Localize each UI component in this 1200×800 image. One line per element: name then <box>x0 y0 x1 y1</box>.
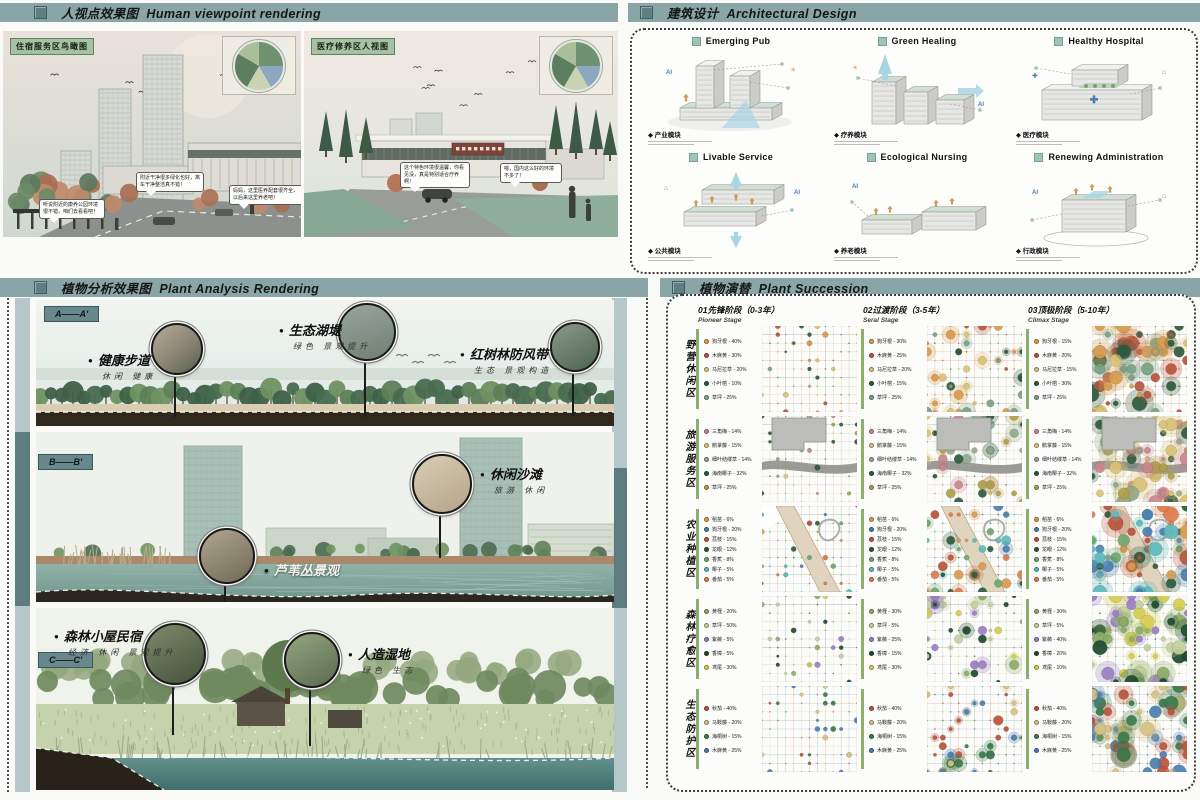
zone-label: 野营休闲区 <box>670 339 696 399</box>
legend-item: 三角梅 - 14% <box>869 428 921 435</box>
legend-item: 香蕉 - 8% <box>869 556 921 563</box>
legend-item: 马鞍藤 - 20% <box>1034 719 1086 726</box>
legend-item: 番茄 - 5% <box>869 576 921 583</box>
legend-item: 黄槿 - 30% <box>1034 608 1086 615</box>
header-title: 植物分析效果图Plant Analysis Rendering <box>61 278 319 297</box>
callout-subtext: 生态 景观构造 <box>474 365 552 376</box>
legend-item: 番茄 - 5% <box>1034 576 1086 583</box>
legend-text: 香蕉 - 8% <box>877 556 899 563</box>
feature-callout: ●休闲沙滩旅游 休闲 <box>480 464 548 496</box>
legend-text: 马鞍藤 - 20% <box>712 719 741 726</box>
legend-text: 马尼拉草 - 15% <box>1042 366 1076 373</box>
site-plan-inset <box>222 36 296 95</box>
legend-dot <box>1034 547 1039 552</box>
speech-bubble: 妈妈，这里医养配套很齐全，以后来这里养老吧！ <box>229 185 301 205</box>
legend-item: 海桐树 - 15% <box>1034 733 1086 740</box>
legend-dot <box>704 651 709 656</box>
legend-text: 鹅掌藤 - 15% <box>712 442 741 449</box>
section-tag: B——B' <box>38 454 93 470</box>
module-title: Renewing Administration <box>1048 152 1163 162</box>
legend-text: 鸢尾 - 30% <box>877 664 901 671</box>
legend-text: 香蕉 - 8% <box>1042 556 1064 563</box>
callout-subtext: 绿色 生态 <box>362 665 416 676</box>
legend-text: 小叶榕 - 10% <box>712 380 741 387</box>
legend-text: 荔枝 - 15% <box>712 536 736 543</box>
legend-dot <box>1034 651 1039 656</box>
legend-text: 香蕉 - 8% <box>712 556 734 563</box>
stage-header: 02过渡阶段（3-5年）Seral Stage <box>863 304 1028 324</box>
legend-item: 荔枝 - 15% <box>1034 536 1086 543</box>
legend-dot <box>704 367 709 372</box>
architecture-module: Emerging PubAI☀◆ 产业模块 <box>640 34 822 148</box>
stage-title: 03顶极阶段（5-10年） <box>1028 304 1193 316</box>
ai-icon: AI <box>852 184 858 190</box>
legend-item: 荔枝 - 15% <box>704 536 756 543</box>
succession-dot-grid <box>1092 326 1187 412</box>
legend-dot <box>704 577 709 582</box>
legend-text: 狗牙根 - 30% <box>877 338 906 345</box>
legend-dot <box>869 567 874 572</box>
callout-subtext: 经济 休闲 景观提升 <box>68 647 176 658</box>
succession-dot-grid <box>762 686 857 772</box>
legend-text: 小叶榕 - 30% <box>1042 380 1071 387</box>
succession-cell: 秋茄 - 40%马鞍藤 - 20%海桐树 - 15%木麻黄 - 25% <box>696 685 861 773</box>
legend-dot <box>704 429 709 434</box>
legend-item: 椰子 - 5% <box>869 566 921 573</box>
legend-dot <box>704 706 709 711</box>
legend-dot <box>704 734 709 739</box>
legend-text: 草坪 - 25% <box>877 394 901 401</box>
legend-item: 海南椰子 - 32% <box>704 470 756 477</box>
legend-text: 荔枝 - 15% <box>877 536 901 543</box>
legend-dot <box>1034 567 1039 572</box>
legend-item: 香蕉 - 8% <box>1034 556 1086 563</box>
succession-cell: 稻苗 - 6%狗牙根 - 20%荔枝 - 15%龙眼 - 12%香蕉 - 8%椰… <box>696 505 861 593</box>
zone-label: 森林疗愈区 <box>670 609 696 669</box>
legend-dot <box>1034 557 1039 562</box>
legend-item: 鸢尾 - 30% <box>704 664 756 671</box>
speech-bubble: 嗯，国内这么好的环境不多了！ <box>500 163 562 183</box>
legend-item: 稻苗 - 6% <box>1034 516 1086 523</box>
legend-item: 鸢尾 - 30% <box>869 664 921 671</box>
legend-dot <box>704 537 709 542</box>
feature-callout: ●红树林防风带生态 景观构造 <box>460 344 552 376</box>
rendering-title-tag: 医疗修养区人视图 <box>311 38 395 55</box>
legend-item: 小叶榕 - 15% <box>869 380 921 387</box>
legend-item: 龙眼 - 12% <box>704 546 756 553</box>
legend-item: 狗牙根 - 40% <box>704 338 756 345</box>
module-note-line <box>648 257 712 259</box>
header-title: 人视点效果图Human viewpoint rendering <box>61 3 321 22</box>
legend-dot <box>869 353 874 358</box>
legend-item: 海桐树 - 15% <box>869 733 921 740</box>
stage-subtitle: Pioneer Stage <box>698 317 863 324</box>
legend-item: 鹅掌藤 - 15% <box>1034 442 1086 449</box>
zone-label: 农业种植区 <box>670 519 696 579</box>
legend-dot <box>869 471 874 476</box>
legend-dot <box>704 720 709 725</box>
site-plan-icon <box>550 40 602 92</box>
legend-item: 稻苗 - 6% <box>869 516 921 523</box>
side-bar-left <box>15 298 30 792</box>
legend-item: 狗牙根 - 20% <box>1034 526 1086 533</box>
legend-item: 龙眼 - 12% <box>1034 546 1086 553</box>
succession-dot-grid <box>762 326 857 412</box>
module-note: ◆ 公共模块 <box>648 245 712 261</box>
legend-item: 紫薇 - 25% <box>869 636 921 643</box>
legend-item: 草坪 - 25% <box>1034 394 1086 401</box>
legend-item: 细叶结缕草 - 14% <box>1034 456 1086 463</box>
legend-text: 细叶结缕草 - 14% <box>1042 456 1081 463</box>
legend-item: 香蕉 - 8% <box>704 556 756 563</box>
succession-legend: 稻苗 - 6%狗牙根 - 20%荔枝 - 15%龙眼 - 12%香蕉 - 8%椰… <box>696 509 756 589</box>
legend-text: 木麻黄 - 25% <box>877 747 906 754</box>
legend-dot <box>1034 748 1039 753</box>
succession-cell: 黄槿 - 20%草坪 - 50%紫薇 - 5%香樟 - 5%鸢尾 - 30% <box>696 595 861 683</box>
legend-dot <box>1034 577 1039 582</box>
legend-text: 草坪 - 25% <box>877 484 901 491</box>
succession-dot-grid <box>927 686 1022 772</box>
section-marker-icon <box>34 6 47 19</box>
legend-dot <box>869 651 874 656</box>
legend-text: 秋茄 - 40% <box>712 705 736 712</box>
stage-subtitle: Climax Stage <box>1028 317 1193 324</box>
legend-text: 三角梅 - 14% <box>1042 428 1071 435</box>
callout-stem <box>439 510 441 558</box>
legend-text: 木麻黄 - 25% <box>1042 747 1071 754</box>
legend-item: 海南椰子 - 32% <box>1034 470 1086 477</box>
legend-text: 椰子 - 5% <box>1042 566 1064 573</box>
callout-detail-circle <box>151 323 203 375</box>
bullet-dot-icon: ● <box>54 632 59 641</box>
callout-detail-circle <box>412 454 472 514</box>
callout-name: ●健康步道 <box>88 350 156 369</box>
stage-header-row: 01先锋阶段（0-3年）Pioneer Stage02过渡阶段（3-5年）Ser… <box>698 304 1194 324</box>
header-title-en: Human viewpoint rendering <box>146 7 321 21</box>
legend-text: 草坪 - 50% <box>712 622 736 629</box>
legend-text: 海南椰子 - 32% <box>1042 470 1076 477</box>
ai-icon: AI <box>978 102 984 108</box>
speech-bubble: 附近干净很多绿化也好，离车干净整洁真不错！ <box>136 172 204 192</box>
house-icon: ⌂ <box>1162 193 1166 200</box>
legend-dot <box>704 547 709 552</box>
succession-dot-grid <box>927 416 1022 502</box>
feature-callout: ●人造湿地绿色 生态 <box>348 644 416 676</box>
speech-bubble: 这个特色环境很温馨，你看见没，真是特别适合疗养啊！ <box>400 162 470 188</box>
legend-item: 小叶榕 - 30% <box>1034 380 1086 387</box>
legend-item: 狗牙根 - 30% <box>869 338 921 345</box>
succession-dot-grid <box>762 506 857 592</box>
succession-legend: 三角梅 - 14%鹅掌藤 - 15%细叶结缕草 - 14%海南椰子 - 32%草… <box>1026 419 1086 499</box>
architecture-module: Healthy Hospital✚⌂◆ 医疗模块 <box>1008 34 1190 148</box>
stage-header: 03顶极阶段（5-10年）Climax Stage <box>1028 304 1193 324</box>
legend-dot <box>869 517 874 522</box>
legend-item: 木麻黄 - 25% <box>869 352 921 359</box>
legend-text: 三角梅 - 14% <box>877 428 906 435</box>
legend-text: 草坪 - 25% <box>1042 484 1066 491</box>
module-axonometric: AI <box>838 164 996 252</box>
legend-dot <box>1034 443 1039 448</box>
legend-text: 海桐树 - 15% <box>1042 733 1071 740</box>
legend-text: 黄槿 - 20% <box>712 608 736 615</box>
succession-cell: 狗牙根 - 15%木麻黄 - 20%马尼拉草 - 15%小叶榕 - 30%草坪 … <box>1026 325 1191 413</box>
legend-text: 香樟 - 15% <box>877 650 901 657</box>
succession-dot-grid <box>1092 416 1187 502</box>
legend-dot <box>704 567 709 572</box>
zone-row: 旅游服务区三角梅 - 14%鹅掌藤 - 15%细叶结缕草 - 14%海南椰子 -… <box>670 414 1194 504</box>
legend-dot <box>1034 457 1039 462</box>
succession-dot-grid <box>927 326 1022 412</box>
legend-item: 草坪 - 25% <box>704 394 756 401</box>
ai-icon: AI <box>666 70 672 76</box>
succession-legend: 秋茄 - 40%马鞍藤 - 20%海桐树 - 15%木麻黄 - 25% <box>1026 689 1086 769</box>
succession-cell: 三角梅 - 14%鹅掌藤 - 15%细叶结缕草 - 14%海南椰子 - 32%草… <box>1026 415 1191 503</box>
legend-text: 紫薇 - 40% <box>1042 636 1066 643</box>
legend-text: 狗牙根 - 20% <box>712 526 741 533</box>
bullet-dot-icon: ● <box>348 650 353 659</box>
legend-dot <box>1034 720 1039 725</box>
legend-dot <box>704 395 709 400</box>
legend-item: 稻苗 - 6% <box>704 516 756 523</box>
callout-detail-circle <box>550 322 600 372</box>
module-axonometric: ☀AI <box>838 48 996 136</box>
legend-dot <box>1034 395 1039 400</box>
legend-dot <box>704 665 709 670</box>
legend-dot <box>704 339 709 344</box>
architecture-module: Green Healing☀AI◆ 疗养模块 <box>826 34 1008 148</box>
legend-dot <box>869 547 874 552</box>
legend-dot <box>704 353 709 358</box>
section-b: B——B'●休闲沙滩旅游 休闲●芦苇丛景观 <box>36 432 614 602</box>
legend-item: 狗牙根 - 20% <box>869 526 921 533</box>
callout-name: ●休闲沙滩 <box>480 464 548 483</box>
succession-legend: 黄槿 - 30%草坪 - 5%紫薇 - 40%香樟 - 20%鸢尾 - 10% <box>1026 599 1086 679</box>
legend-dot <box>704 457 709 462</box>
legend-item: 细叶结缕草 - 14% <box>869 456 921 463</box>
callout-detail-circle <box>199 528 255 584</box>
legend-dot <box>869 706 874 711</box>
succession-dot-grid <box>1092 506 1187 592</box>
legend-dot <box>869 748 874 753</box>
house-icon: ⌂ <box>664 185 668 192</box>
legend-dot <box>869 577 874 582</box>
legend-dot <box>704 471 709 476</box>
legend-dot <box>704 381 709 386</box>
callout-stem <box>572 368 574 416</box>
legend-text: 番茄 - 5% <box>712 576 734 583</box>
module-title-row: Healthy Hospital <box>1008 34 1190 48</box>
legend-text: 马鞍藤 - 20% <box>877 719 906 726</box>
legend-text: 稻苗 - 6% <box>877 516 899 523</box>
succession-cell: 三角梅 - 14%鹅掌藤 - 15%细叶结缕草 - 14%海南椰子 - 32%草… <box>861 415 1026 503</box>
module-note-line <box>648 260 694 262</box>
legend-dot <box>1034 734 1039 739</box>
legend-text: 狗牙根 - 40% <box>712 338 741 345</box>
legend-dot <box>704 623 709 628</box>
succession-dot-grid <box>1092 686 1187 772</box>
header-title-zh: 人视点效果图 <box>61 7 138 21</box>
architectural-design-panel: Emerging PubAI☀◆ 产业模块Green Healing☀AI◆ 疗… <box>630 28 1198 274</box>
header-plant-analysis: 植物分析效果图Plant Analysis Rendering <box>0 278 648 297</box>
legend-text: 鹅掌藤 - 15% <box>1042 442 1071 449</box>
legend-item: 香樟 - 15% <box>869 650 921 657</box>
stage-header: 01先锋阶段（0-3年）Pioneer Stage <box>698 304 863 324</box>
legend-dot <box>869 734 874 739</box>
bullet-dot-icon: ● <box>88 356 93 365</box>
feature-callout: ●健康步道休闲 健康 <box>88 350 156 382</box>
legend-text: 海南椰子 - 32% <box>877 470 911 477</box>
header-architectural-design: 建筑设计Architectural Design <box>628 3 1200 22</box>
module-title: Ecological Nursing <box>881 152 968 162</box>
legend-text: 细叶结缕草 - 14% <box>712 456 751 463</box>
legend-dot <box>1034 537 1039 542</box>
module-label: ◆ 疗养模块 <box>834 129 898 139</box>
module-note: ◆ 养老模块 <box>834 245 898 261</box>
bullet-dot-icon: ● <box>264 566 269 575</box>
legend-dot <box>704 527 709 532</box>
succession-cell: 黄槿 - 30%草坪 - 5%紫薇 - 25%香樟 - 15%鸢尾 - 30% <box>861 595 1026 683</box>
legend-text: 狗牙根 - 20% <box>877 526 906 533</box>
architecture-module: Ecological NursingAI◆ 养老模块 <box>826 150 1008 264</box>
callout-name: ●红树林防风带 <box>460 344 552 363</box>
legend-item: 番茄 - 5% <box>704 576 756 583</box>
succession-cell: 狗牙根 - 30%木麻黄 - 25%马尼拉草 - 20%小叶榕 - 15%草坪 … <box>861 325 1026 413</box>
legend-text: 荔枝 - 15% <box>1042 536 1066 543</box>
feature-callout: ●森林小屋民宿经济 休闲 景观提升 <box>54 626 176 658</box>
module-note: ◆ 疗养模块 <box>834 129 898 145</box>
legend-dot <box>869 485 874 490</box>
legend-item: 狗牙根 - 15% <box>1034 338 1086 345</box>
callout-subtext: 绿色 景观提升 <box>293 341 371 352</box>
legend-dot <box>869 720 874 725</box>
legend-item: 秋茄 - 40% <box>704 705 756 712</box>
legend-text: 海桐树 - 15% <box>877 733 906 740</box>
module-title-row: Livable Service <box>640 150 822 164</box>
legend-dot <box>704 443 709 448</box>
legend-dot <box>704 637 709 642</box>
legend-item: 海桐树 - 15% <box>704 733 756 740</box>
callout-stem <box>364 357 366 417</box>
legend-item: 草坪 - 5% <box>869 622 921 629</box>
legend-item: 香樟 - 5% <box>704 650 756 657</box>
succession-cell: 黄槿 - 30%草坪 - 5%紫薇 - 40%香樟 - 20%鸢尾 - 10% <box>1026 595 1191 683</box>
legend-item: 马鞍藤 - 20% <box>869 719 921 726</box>
legend-text: 木麻黄 - 20% <box>1042 352 1071 359</box>
module-note-line <box>834 144 880 146</box>
callout-detail-circle <box>284 632 340 688</box>
legend-item: 香樟 - 20% <box>1034 650 1086 657</box>
legend-text: 三角梅 - 14% <box>712 428 741 435</box>
side-bar-right-dark <box>612 468 627 608</box>
succession-cell: 秋茄 - 40%马鞍藤 - 20%海桐树 - 15%木麻黄 - 25% <box>861 685 1026 773</box>
legend-dot <box>704 609 709 614</box>
legend-dot <box>869 443 874 448</box>
stage-title: 01先锋阶段（0-3年） <box>698 304 863 316</box>
header-human-viewpoint: 人视点效果图Human viewpoint rendering <box>0 3 618 22</box>
legend-text: 龙眼 - 12% <box>877 546 901 553</box>
succession-legend: 三角梅 - 14%鹅掌藤 - 15%细叶结缕草 - 14%海南椰子 - 32%草… <box>861 419 921 499</box>
legend-dot <box>1034 527 1039 532</box>
bullet-dot-icon: ● <box>480 470 485 479</box>
legend-item: 草坪 - 5% <box>1034 622 1086 629</box>
module-label: ◆ 养老模块 <box>834 245 898 255</box>
legend-item: 狗牙根 - 20% <box>704 526 756 533</box>
module-axonometric: ⌂AI <box>1020 164 1178 252</box>
callout-name: ●森林小屋民宿 <box>54 626 176 645</box>
callout-name: ●生态湖堤 <box>279 320 371 339</box>
legend-item: 秋茄 - 40% <box>869 705 921 712</box>
legend-item: 草坪 - 25% <box>1034 484 1086 491</box>
module-note-line <box>1016 257 1080 259</box>
legend-text: 椰子 - 5% <box>712 566 734 573</box>
legend-item: 木麻黄 - 20% <box>1034 352 1086 359</box>
module-title-row: Emerging Pub <box>640 34 822 48</box>
module-marker-icon <box>692 37 701 46</box>
legend-text: 海桐树 - 15% <box>712 733 741 740</box>
succession-legend: 稻苗 - 6%狗牙根 - 20%荔枝 - 15%龙眼 - 12%香蕉 - 8%椰… <box>861 509 921 589</box>
module-label: ◆ 公共模块 <box>648 245 712 255</box>
legend-text: 草坪 - 25% <box>712 484 736 491</box>
legend-text: 细叶结缕草 - 14% <box>877 456 916 463</box>
zone-label: 生态防护区 <box>670 699 696 759</box>
header-title-zh: 植物分析效果图 <box>61 282 151 296</box>
succession-dot-grid <box>927 596 1022 682</box>
legend-item: 椰子 - 5% <box>1034 566 1086 573</box>
legend-item: 三角梅 - 14% <box>1034 428 1086 435</box>
legend-item: 木麻黄 - 30% <box>704 352 756 359</box>
module-title: Emerging Pub <box>706 36 771 46</box>
zone-row: 森林疗愈区黄槿 - 20%草坪 - 50%紫薇 - 5%香樟 - 5%鸢尾 - … <box>670 594 1194 684</box>
legend-dot <box>1034 367 1039 372</box>
succession-legend: 狗牙根 - 15%木麻黄 - 20%马尼拉草 - 15%小叶榕 - 30%草坪 … <box>1026 329 1086 409</box>
legend-text: 鹅掌藤 - 15% <box>877 442 906 449</box>
legend-text: 海南椰子 - 32% <box>712 470 746 477</box>
legend-dot <box>1034 706 1039 711</box>
legend-item: 海南椰子 - 32% <box>869 470 921 477</box>
module-label: ◆ 医疗模块 <box>1016 129 1080 139</box>
succession-legend: 狗牙根 - 30%木麻黄 - 25%马尼拉草 - 20%小叶榕 - 15%草坪 … <box>861 329 921 409</box>
callout-stem <box>309 684 311 746</box>
module-note-line <box>648 144 694 146</box>
legend-dot <box>1034 429 1039 434</box>
succession-dot-grid <box>762 596 857 682</box>
legend-text: 狗牙根 - 20% <box>1042 526 1071 533</box>
legend-item: 草坪 - 25% <box>869 484 921 491</box>
medical-cross-icon: ✚ <box>1032 72 1038 80</box>
rendering-accommodation-aerial: 住宿服务区鸟瞰图听说附近的康养公园环境很不错，咱们去看看吧！附近干净很多绿化也好… <box>3 31 301 237</box>
legend-item: 木麻黄 - 25% <box>1034 747 1086 754</box>
legend-text: 草坪 - 5% <box>1042 622 1064 629</box>
succession-legend: 稻苗 - 6%狗牙根 - 20%荔枝 - 15%龙眼 - 12%香蕉 - 8%椰… <box>1026 509 1086 589</box>
succession-legend: 秋茄 - 40%马鞍藤 - 20%海桐树 - 15%木麻黄 - 25% <box>696 689 756 769</box>
succession-legend: 秋茄 - 40%马鞍藤 - 20%海桐树 - 15%木麻黄 - 25% <box>861 689 921 769</box>
legend-item: 黄槿 - 30% <box>869 608 921 615</box>
legend-dot <box>869 609 874 614</box>
module-axonometric: ✚⌂ <box>1020 48 1178 136</box>
legend-text: 龙眼 - 12% <box>1042 546 1066 553</box>
module-title-row: Green Healing <box>826 34 1008 48</box>
legend-dot <box>704 485 709 490</box>
legend-item: 马尼拉草 - 20% <box>704 366 756 373</box>
stage-title: 02过渡阶段（3-5年） <box>863 304 1028 316</box>
legend-text: 番茄 - 5% <box>1042 576 1064 583</box>
legend-dot <box>869 623 874 628</box>
legend-item: 马尼拉草 - 20% <box>869 366 921 373</box>
legend-text: 秋茄 - 40% <box>1042 705 1066 712</box>
section-tag: A——A' <box>44 306 99 322</box>
legend-dot <box>704 557 709 562</box>
module-marker-icon <box>878 37 887 46</box>
